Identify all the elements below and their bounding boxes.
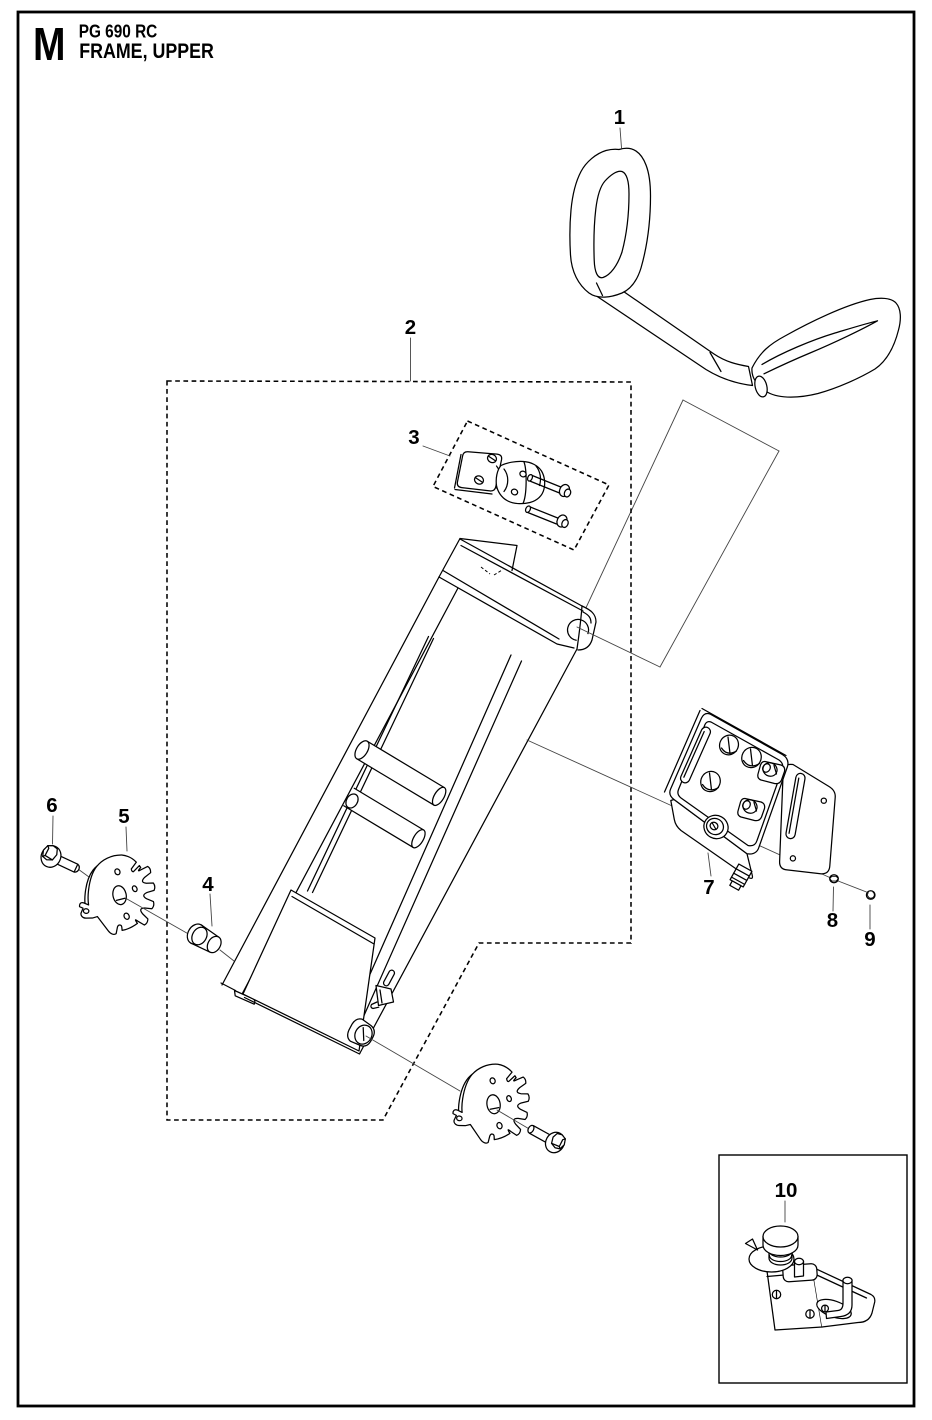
svg-text:4: 4 (202, 873, 214, 896)
svg-text:2: 2 (405, 316, 416, 339)
svg-text:9: 9 (864, 928, 875, 951)
svg-text:FRAME, UPPER: FRAME, UPPER (79, 40, 214, 63)
svg-text:M: M (33, 18, 66, 70)
svg-text:PG 690 RC: PG 690 RC (79, 21, 158, 41)
svg-text:8: 8 (827, 909, 838, 932)
svg-text:1: 1 (614, 106, 625, 129)
svg-text:5: 5 (118, 805, 129, 828)
svg-text:7: 7 (703, 876, 714, 899)
svg-text:10: 10 (775, 1179, 798, 1202)
svg-text:6: 6 (46, 794, 57, 817)
svg-text:3: 3 (408, 426, 419, 449)
